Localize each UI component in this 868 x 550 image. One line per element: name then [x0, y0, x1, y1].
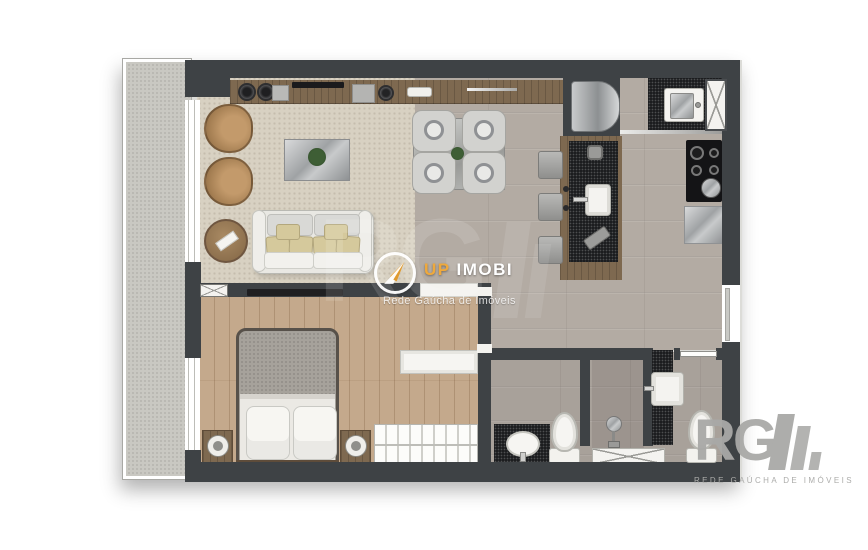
decor-bowl-3 [378, 85, 394, 101]
shower-head [606, 416, 622, 432]
balcony-floor [122, 58, 192, 480]
nightstand-lamp-2 [346, 436, 366, 456]
wall-left-bottom [185, 450, 201, 482]
island-faucet [573, 197, 588, 202]
brand-logo-circle [374, 252, 416, 294]
bed-pillow-2 [293, 406, 337, 460]
dining-chair-4 [462, 152, 506, 194]
bath2-sink [651, 372, 684, 406]
living-balcony-slider [185, 100, 200, 262]
cooktop-knob [701, 178, 721, 198]
island-knob-2 [563, 205, 569, 211]
floorplan-image: RG UP IMOBI Rede Gaúcha de Imóveis RG RE… [0, 0, 868, 550]
island-sink [585, 184, 611, 216]
nightstand-lamp-1 [208, 436, 228, 456]
island-appliance [587, 145, 603, 160]
wall-top-left-corner [185, 60, 230, 97]
dining-chair-seat [424, 120, 444, 140]
dining-chair-1 [412, 110, 456, 152]
dining-chair-2 [462, 110, 506, 152]
kitchen-sink-basin [670, 93, 694, 119]
bedroom-window [185, 358, 200, 450]
bed-pillow-1 [246, 406, 290, 460]
wall-shower-divider [580, 352, 590, 446]
vanity-faucet [520, 452, 526, 462]
decor-tray-3 [407, 87, 432, 97]
brand-wordmark-imobi: IMOBI [457, 260, 514, 279]
bar-stool-1 [538, 151, 563, 179]
decor-bowl-1 [238, 83, 256, 101]
dining-chair-seat [474, 163, 494, 183]
shower-valve [608, 441, 620, 448]
burner-3 [691, 165, 702, 176]
dining-chair-seat [424, 163, 444, 183]
bedroom-shelf [400, 350, 478, 374]
wardrobe [374, 424, 478, 466]
wall-bottom [185, 462, 740, 482]
bar-stool-2 [538, 193, 563, 221]
wall-vent-box [200, 284, 228, 297]
corner-logo-building-3 [808, 452, 821, 470]
kitchen-sink-drain [695, 102, 701, 108]
bed-duvet [240, 332, 335, 396]
armchair-2 [204, 157, 253, 206]
burner-4 [709, 165, 719, 175]
corner-logo-building-2 [790, 426, 811, 470]
toilet-1-bowl [551, 412, 578, 452]
hall-wall-jamb-2 [477, 344, 492, 353]
island-knob-1 [563, 186, 569, 192]
kitchen-sink [664, 88, 704, 122]
shower-floor [592, 358, 644, 450]
brand-wordmark-up: UP [424, 260, 450, 279]
bath2-door-bar [680, 351, 717, 357]
brand-tagline: Rede Gaúcha de Imóveis [383, 295, 516, 307]
corner-logo-letters: RG [694, 412, 775, 470]
corner-logo-tagline: REDE GAÚCHA DE IMÓVEIS [694, 476, 854, 485]
brand-wordmark: UP IMOBI [424, 260, 513, 280]
refrigerator [571, 81, 620, 132]
sofa-pillow-3 [276, 224, 300, 240]
burner-2 [709, 148, 719, 158]
dining-chair-seat [474, 120, 494, 140]
armchair-1 [204, 104, 253, 153]
soundbar [292, 82, 344, 88]
coffee-table-plant [308, 148, 326, 166]
decor-tray-2 [352, 84, 375, 103]
wall-hall-bathroom [482, 348, 648, 360]
dining-table-plant [451, 147, 464, 160]
wall-top [185, 60, 740, 78]
wall-left-mid [185, 262, 201, 358]
bath2-faucet [644, 386, 654, 391]
sofa-seat-1 [264, 252, 314, 269]
shaft-box [705, 79, 727, 131]
kitchen-cabinet [684, 206, 724, 244]
wardrobe-rod [375, 444, 477, 446]
decor-tray-1 [272, 85, 289, 101]
decor-chrome-bar [467, 88, 517, 91]
entry-door-leaf [725, 288, 730, 341]
dining-chair-3 [412, 152, 456, 194]
paper-plane-icon [380, 258, 410, 288]
burner-1 [690, 146, 704, 160]
cooktop [686, 140, 722, 202]
